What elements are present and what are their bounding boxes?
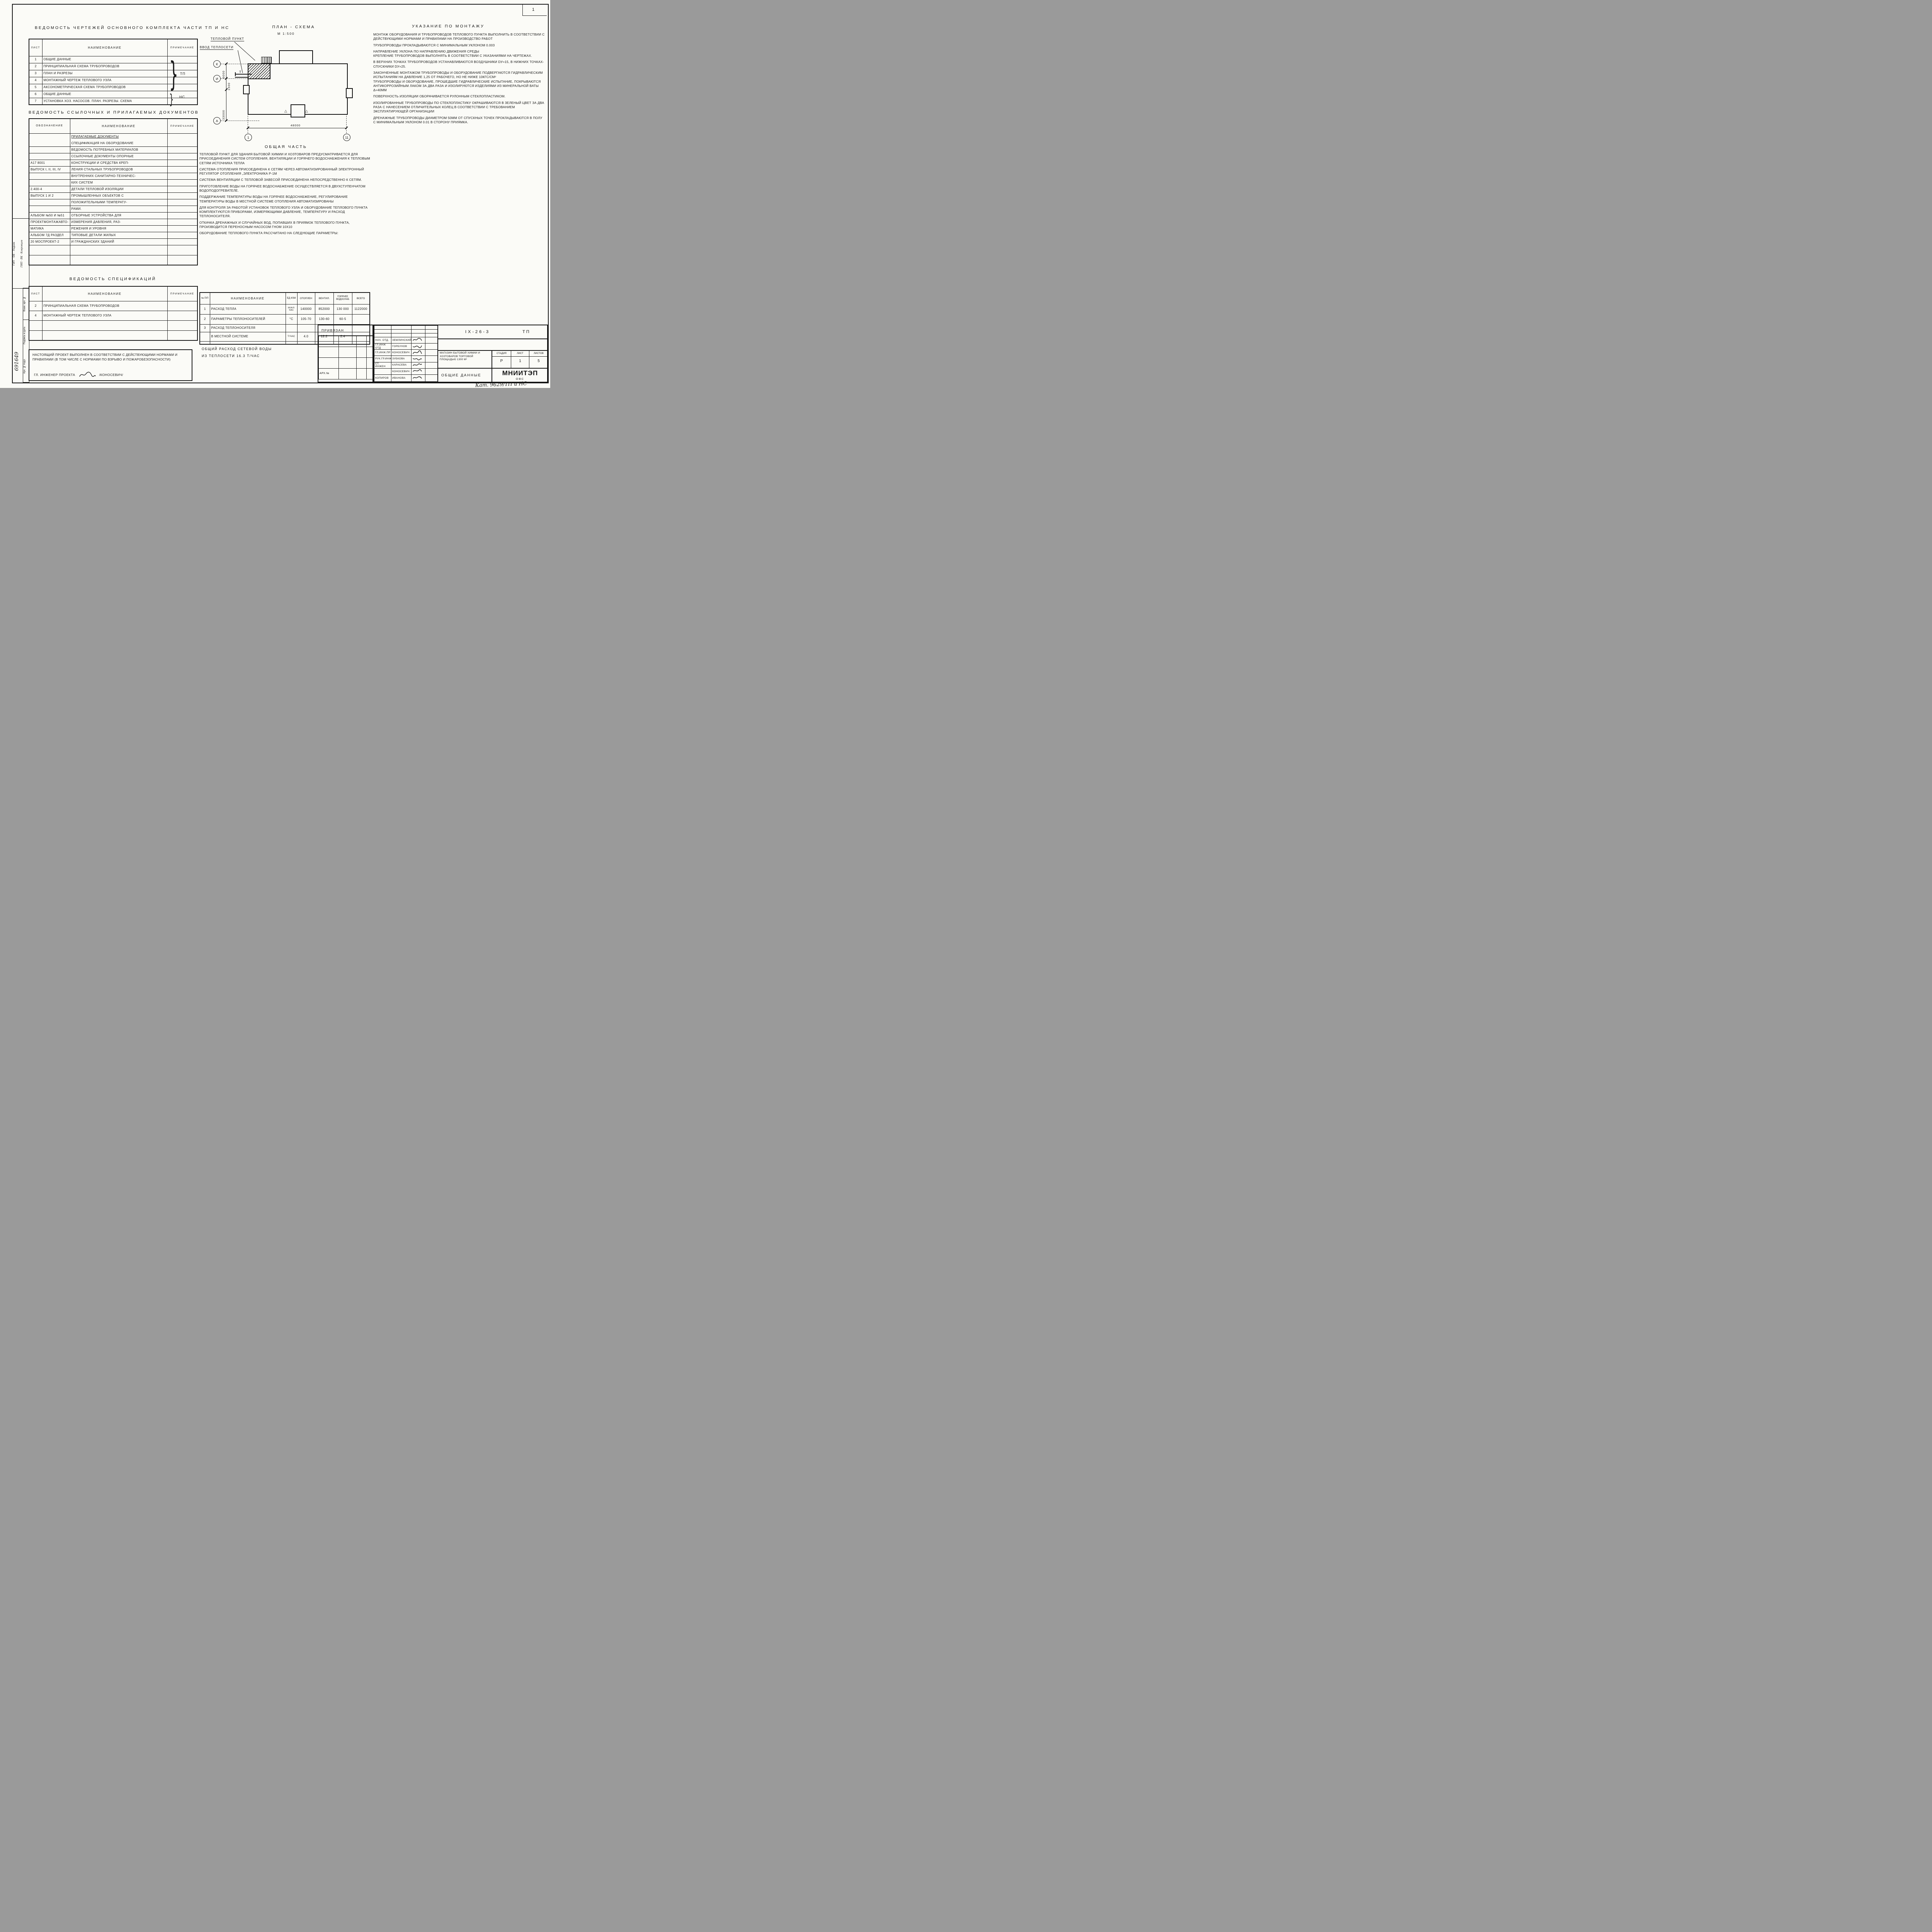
empty-cell (425, 350, 438, 356)
empty-cell (391, 326, 412, 330)
signature-table: Нач. отд.Землинский Гл.инж отдГорбунов Г… (374, 325, 438, 382)
paragraph: Система вентиляции с тепловой завесой пр… (199, 178, 371, 182)
cell-ref-code (29, 245, 70, 255)
role-label: Гл.инж.пр (374, 350, 391, 356)
plan-bottom-entrance (291, 104, 305, 117)
empty-cell (319, 347, 339, 357)
stage-value: Р (492, 357, 511, 368)
plan-roof-bump (279, 50, 313, 64)
sheet-value: 1 (511, 357, 529, 368)
cell-ref-note (167, 238, 197, 245)
cell-spec-no (29, 320, 42, 330)
param-num (200, 332, 210, 341)
axis-circle-i: И (213, 75, 221, 82)
cell-spec-note (167, 330, 197, 340)
sheet-header: Лист (511, 351, 529, 356)
cell-ref-code (29, 206, 70, 212)
param-col-heat: Отоплен (297, 293, 315, 304)
param-unit (286, 324, 297, 332)
group-label-tp: ТП (180, 72, 185, 76)
org-name: МНИИТЭП (492, 369, 548, 377)
cell-ref-code (29, 173, 70, 179)
dim-6000: 6000 (222, 65, 225, 78)
param-num: 3 (200, 324, 210, 332)
axis-circle-11: 11 (343, 134, 350, 141)
cell-ref-name: Ведомость потребных материалов (70, 146, 167, 153)
cell-sheet-name: Общие данные (42, 91, 167, 98)
stamp-code-row: IX-26-3 ТП (438, 325, 548, 339)
sheets-col-note: Примечание (167, 39, 197, 56)
total-network-water-line2: из теплосети 16.3 Т/час (202, 354, 260, 358)
cell-spec-name: Принципиальная схема трубопроводов (42, 301, 167, 311)
privyazan-label: Привязан (318, 325, 372, 335)
signature-cell (412, 356, 425, 362)
cell-ref-name: ких систем (70, 179, 167, 186)
dim-chain-vertical (226, 64, 226, 121)
cell-spec-no: 4 (29, 311, 42, 320)
role-label (374, 368, 391, 374)
plan-heat-point-area (248, 63, 270, 79)
brace-tp: } (169, 56, 178, 92)
empty-cell (200, 341, 210, 344)
role-name: Зубкова (391, 356, 412, 362)
signature-glyph (412, 363, 422, 367)
param-name: в местной системе (210, 332, 286, 341)
empty-cell (286, 341, 297, 344)
specs-table: Лист Наименование Примечание 2Принципиал… (29, 286, 198, 341)
signature-cell (412, 344, 425, 350)
project-note-text: Настоящий проект выполнен в соответствии… (32, 352, 189, 362)
group-label-ns: НС (179, 95, 185, 99)
empty-cell (425, 368, 438, 374)
cell-ref-name: измерения давления, раз- (70, 219, 167, 225)
param-vent: 130-60 (315, 314, 333, 324)
cell-ref-note (167, 212, 197, 219)
cell-sheet-name: Монтажный чертеж теплового узла (42, 77, 167, 84)
cell-spec-name: Монтажный чертеж теплового узла (42, 311, 167, 320)
param-heat: 105-70 (297, 314, 315, 324)
param-col-hw: Горячее водоснаб (333, 293, 352, 304)
empty-cell (374, 333, 391, 337)
plan-vent-strip (261, 57, 272, 63)
cell-ref-name (70, 255, 167, 265)
role-name: Коносевич (391, 350, 412, 356)
doc-title: Общие данные (438, 369, 492, 383)
cell-ref-code: 2.400-4 (29, 186, 70, 192)
cell-ref-code: Выпуск I, II, III, IV (29, 166, 70, 173)
empty-cell (412, 333, 425, 337)
heat-inlet-line2 (235, 77, 248, 78)
cell-sheet-name: Общие данные (42, 56, 167, 63)
sheets-header: Листов (529, 351, 548, 356)
role-name: Горбунов (391, 344, 412, 350)
cell-ref-note (167, 133, 197, 140)
empty-cell (339, 336, 357, 347)
param-col-total: Всего (352, 293, 370, 304)
stage-grid: Стадия Лист Листов Р 1 5 (492, 351, 548, 368)
param-total (352, 314, 370, 324)
param-hw: 60-5 (333, 314, 352, 324)
cell-ref-note (167, 219, 197, 225)
dim-1500: 1500 (227, 79, 231, 90)
paragraph: Изолированные трубопроводы по стеклоплас… (373, 101, 546, 114)
paragraph: Поверхность изоляции оборачивается рулон… (373, 94, 546, 99)
cell-sheet-name: Принципиальная схема трубопроводов (42, 63, 167, 70)
cell-ref-note (167, 173, 197, 179)
signature-glyph (412, 338, 422, 342)
refs-col-name: Наименование (70, 119, 167, 133)
cell-ref-note (167, 232, 197, 238)
cell-ref-code: Альбом 7д раздел (29, 232, 70, 238)
refs-table-title: Ведомость ссылочных и прилагаемых докуме… (29, 110, 199, 115)
empty-cell (374, 326, 391, 330)
signature-glyph (412, 344, 422, 348)
triangle-mark-right: △ (305, 109, 308, 113)
empty-cell (367, 357, 373, 368)
paragraph: Система отопления присоединена к сетям ч… (199, 167, 371, 176)
paragraph: Откачка дренажных и случайных вод, попав… (199, 221, 371, 230)
project-note-signer: Гл. инженер проекта /Коносевич/ (34, 372, 123, 378)
empty-cell (374, 330, 391, 333)
cell-sheet-no: 7 (29, 98, 42, 105)
sheets-value: 5 (529, 357, 548, 368)
cell-spec-note (167, 301, 197, 311)
refs-col-code: Обозначение (29, 119, 70, 133)
cell-ref-note (167, 153, 197, 160)
stage-grid-header: Стадия Лист Листов (492, 351, 548, 357)
cell-ref-name: Прилагаемые документы (70, 133, 167, 140)
empty-cell (425, 333, 438, 337)
role-name: Карасева (391, 362, 412, 368)
paragraph: Крепление трубопроводов выполнять в соот… (373, 54, 546, 58)
stamp-empty-row (438, 339, 548, 351)
cell-ref-note (167, 140, 197, 146)
param-num: 1 (200, 304, 210, 314)
privyazan-grid: Арх.№ (318, 335, 373, 379)
cell-sheet-no: 2 (29, 63, 42, 70)
stage-header: Стадия (492, 351, 511, 356)
empty-cell (425, 337, 438, 344)
axis-circle-1: 1 (245, 134, 252, 141)
margin-stamp-col1: ГИП · ОВ · Ледник (12, 219, 20, 288)
dim-33000: 33000 (222, 93, 225, 120)
cell-ref-name: Спецификация на оборудование (70, 140, 167, 146)
param-col-unit: Ед изм (286, 293, 297, 304)
cell-sheet-no: 3 (29, 70, 42, 77)
cell-ref-code (29, 199, 70, 206)
dim-line-48000 (248, 128, 347, 128)
cell-ref-name: Ссылочные документы Опорные (70, 153, 167, 160)
cell-ref-name: конструкции и средства креп- (70, 160, 167, 166)
project-note-box: Настоящий проект выполнен в соответствии… (29, 349, 192, 381)
cell-ref-name: рами. (70, 206, 167, 212)
paragraph: В верхних точках трубопроводов устанавли… (373, 60, 546, 69)
signature-glyph (412, 376, 422, 379)
role-name: Иванова (391, 374, 412, 381)
margin-inventory-number: 691649 (14, 309, 20, 371)
margin-approval-stamp: ГИП · ОВ · Ледник ГИП · ВК · Ковровцев (12, 218, 29, 289)
param-name: Расход теплоносителя (210, 324, 286, 332)
empty-cell (210, 341, 286, 344)
heat-inlet-t-mark: Т (239, 70, 241, 74)
cell-ref-code (29, 255, 70, 265)
general-part-text: Тепловой пункт для здания бытовой химии … (199, 152, 371, 238)
empty-cell (425, 356, 438, 362)
param-vent: 852000 (315, 304, 333, 314)
cell-ref-name: Типовые детали жилых (70, 232, 167, 238)
cell-ref-note (167, 199, 197, 206)
cell-ref-code: 20 Моспроект-2 (29, 238, 70, 245)
plan-label-heat-point: Тепловой пункт (211, 37, 244, 41)
cell-ref-code: Выпуск 1 и 2 (29, 192, 70, 199)
privyazan-box: Привязан Арх.№ (318, 325, 373, 383)
cell-sheet-name: Установка хоз. насосов. План. Разрезы. С… (42, 98, 167, 105)
cell-ref-name: положительными температу- (70, 199, 167, 206)
signature-cell (412, 350, 425, 356)
drawing-sheet: 1 ГИП · ОВ · Ледник ГИП · ВК · Ковровцев… (0, 0, 550, 388)
project-title: Магазин бытовой химии и хозтоваров торго… (438, 351, 492, 368)
role-name: Землинский (391, 337, 412, 344)
cell-ref-code (29, 179, 70, 186)
cell-ref-name: и гражданских зданий (70, 238, 167, 245)
cell-spec-no (29, 330, 42, 340)
empty-cell (391, 330, 412, 333)
cell-sheet-name: Аксонометрическая схема трубопроводов (42, 84, 167, 91)
cell-ref-code: Альбом №50 и №51 (29, 212, 70, 219)
param-unit: °С (286, 314, 297, 324)
paragraph: Дренажные трубопроводы диаметром 50мм от… (373, 116, 546, 125)
cell-ref-name: ления стальных трубопроводов (70, 166, 167, 173)
empty-cell (297, 341, 315, 344)
cell-sheet-no: 6 (29, 91, 42, 98)
mounting-title: Указание по монтажу (386, 24, 510, 29)
paragraph: Для контроля за работой установок теплов… (199, 206, 371, 219)
triangle-mark-left: △ (284, 109, 287, 113)
project-part: ТП (522, 330, 531, 334)
role-name: Коносевич (391, 368, 412, 374)
param-col-name: Наименование (210, 293, 286, 304)
signer-name: /Коносевич/ (99, 373, 123, 377)
cell-ref-note (167, 225, 197, 232)
empty-cell (391, 333, 412, 337)
specs-table-title: Ведомость спецификаций (29, 277, 197, 281)
role-label: Рук.гр.инж (374, 356, 391, 362)
plan-right-entrance (346, 88, 353, 98)
margin-strip-vzam: Взам. арх. № (23, 288, 29, 320)
empty-cell (367, 368, 373, 379)
paragraph: Тепловой пункт для здания бытовой химии … (199, 152, 371, 165)
empty-cell (319, 336, 339, 347)
param-unit: ккал/час (286, 304, 297, 314)
cell-ref-code (29, 146, 70, 153)
stamp-project-row: Магазин бытовой химии и хозтоваров торго… (438, 351, 548, 369)
empty-cell (425, 374, 438, 381)
heat-inlet-tick (235, 72, 236, 76)
signature-glyph (412, 357, 422, 361)
margin-strip-arh: Арх. № подл. (23, 351, 29, 381)
brace-ns: } (169, 92, 173, 107)
empty-cell (357, 368, 367, 379)
cell-sheet-name: План и разрезы (42, 70, 167, 77)
paragraph: Оборудование теплового пункта рассчитано… (199, 231, 371, 235)
plan-left-entrance (243, 85, 250, 94)
param-hw: 130 000 (333, 304, 352, 314)
corner-sheet-number: 1 (532, 7, 534, 12)
stamp-right: IX-26-3 ТП Магазин бытовой химии и хозто… (437, 325, 548, 382)
specs-col-list: Лист (29, 286, 42, 301)
stage-grid-values: Р 1 5 (492, 357, 548, 368)
empty-cell (339, 368, 357, 379)
empty-cell (425, 344, 438, 350)
cell-ref-note (167, 166, 197, 173)
stamp-doc-row: Общие данные МНИИТЭП ОВС (438, 369, 548, 383)
cell-sheet-no: 4 (29, 77, 42, 84)
empty-cell (412, 326, 425, 330)
signature-cell (412, 362, 425, 368)
param-unit: Т/час (286, 332, 297, 341)
total-network-water-line1: Общий расход сетевой воды (202, 347, 272, 351)
cell-spec-name (42, 320, 167, 330)
cell-spec-note (167, 311, 197, 320)
param-heat (297, 324, 315, 332)
cell-ref-code: А17 8001 (29, 160, 70, 166)
org-dept: ОВС (492, 377, 548, 381)
role-label: Ст. инжен (374, 362, 391, 368)
paragraph: Трубопроводы и оборудование, прошедшие г… (373, 80, 546, 93)
empty-cell (339, 357, 357, 368)
param-name: Расход тепла (210, 304, 286, 314)
param-heat: 4.0 (297, 332, 315, 341)
cell-ref-code: Проектмонтажавто- (29, 219, 70, 225)
cell-ref-note (167, 255, 197, 265)
general-part-title: Общая часть (232, 145, 340, 149)
signature-glyph (78, 372, 96, 378)
empty-cell (357, 347, 367, 357)
specs-col-note: Примечание (167, 286, 197, 301)
cell-ref-note (167, 179, 197, 186)
cell-sheet-no: 1 (29, 56, 42, 63)
cell-ref-code (29, 140, 70, 146)
specs-col-name: Наименование (42, 286, 167, 301)
cell-spec-name (42, 330, 167, 340)
project-code: IX-26-3 (465, 330, 490, 334)
axis-circle-a: А (213, 117, 221, 124)
signature-glyph (412, 350, 422, 354)
cell-spec-no: 2 (29, 301, 42, 311)
paragraph: Монтаж оборудования и трубопроводов тепл… (373, 32, 546, 41)
cell-ref-name: Детали тепловой изоляции (70, 186, 167, 192)
empty-cell (425, 362, 438, 368)
cell-ref-name: промышленных объектов с (70, 192, 167, 199)
empty-cell (357, 357, 367, 368)
sheets-col-list: Лист (29, 39, 42, 56)
empty-cell (367, 336, 373, 347)
empty-cell (339, 347, 357, 357)
cell-ref-name: режения и уровня (70, 225, 167, 232)
cell-ref-code (29, 153, 70, 160)
axis-circle-k: К (213, 60, 221, 68)
paragraph: Законченные монтажом трубопроводы и обор… (373, 71, 546, 80)
title-block: Нач. отд.Землинский Гл.инж отдГорбунов Г… (373, 325, 548, 383)
param-col-num: № п/п (200, 293, 210, 304)
refs-table: Обозначение Наименование Примечание Прил… (29, 118, 198, 265)
heat-inlet-line (235, 74, 252, 75)
mounting-text: Монтаж оборудования и трубопроводов тепл… (373, 32, 546, 126)
corner-sheet-number-box: 1 (522, 5, 547, 16)
dim-48000: 48000 (291, 124, 301, 127)
refs-col-note: Примечание (167, 119, 197, 133)
plan-title: План - схема (247, 25, 340, 29)
paragraph: Поддержание температуры воды на горячее … (199, 195, 371, 204)
cell-ref-code (29, 133, 70, 140)
empty-cell (425, 326, 438, 330)
empty-cell (367, 347, 373, 357)
paragraph: Направление уклона по направлению движен… (373, 49, 546, 54)
margin-stamp-col2: ГИП · ВК · Ковровцев (20, 219, 28, 288)
plan-label-heat-inlet: Ввод теплосети (200, 46, 233, 50)
cell-ref-name (70, 245, 167, 255)
empty-cell (412, 330, 425, 333)
param-num: 2 (200, 314, 210, 324)
role-label: Копиров (374, 374, 391, 381)
cell-ref-note (167, 192, 197, 199)
cell-ref-note (167, 146, 197, 153)
cell-ref-name: Отборные устройства для (70, 212, 167, 219)
signature-glyph (412, 369, 422, 373)
empty-cell (357, 336, 367, 347)
arh-no-label: Арх.№ (319, 368, 339, 379)
sheets-col-name: Наименование (42, 39, 167, 56)
margin-strip-podpis: Подпись и дата (23, 320, 29, 351)
signature-cell (412, 374, 425, 381)
plan-scale: М 1:500 (277, 32, 295, 36)
paragraph: Приготовление воды на горячее водоснабже… (199, 184, 371, 193)
empty-cell (319, 357, 339, 368)
signer-role: Гл. инженер проекта (34, 373, 75, 377)
sheets-table-title: Ведомость чертежей основного комплекта ч… (35, 26, 216, 30)
cell-ref-note (167, 186, 197, 192)
paragraph: Трубопроводы прокладываются с минимальны… (373, 43, 546, 48)
signature-cell (412, 368, 425, 374)
param-col-vent: Вентил. (315, 293, 333, 304)
role-label: Нач. отд. (374, 337, 391, 344)
cell-spec-note (167, 320, 197, 330)
signature-cell (412, 337, 425, 344)
cell-ref-note (167, 206, 197, 212)
cell-ref-code: матика (29, 225, 70, 232)
role-label: Гл.инж отд (374, 344, 391, 350)
cell-ref-note (167, 245, 197, 255)
param-name: Параметры теплоносителей (210, 314, 286, 324)
cell-ref-name: внутренних санитарно-техничес- (70, 173, 167, 179)
cell-ref-note (167, 160, 197, 166)
param-total: 1122000 (352, 304, 370, 314)
cell-sheet-no: 5 (29, 84, 42, 91)
param-heat: 140000 (297, 304, 315, 314)
empty-cell (425, 330, 438, 333)
